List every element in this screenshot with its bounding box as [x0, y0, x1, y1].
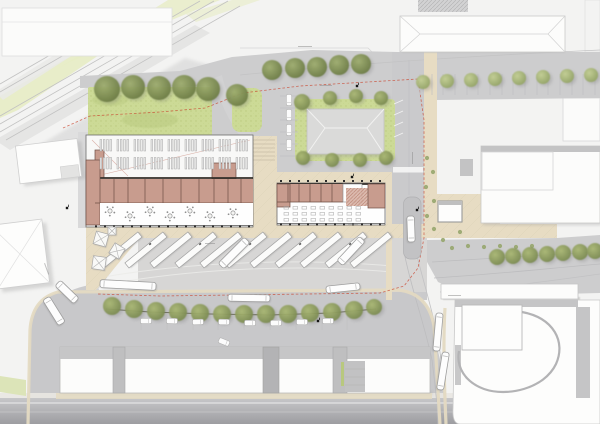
- skylight-bar: [212, 140, 214, 152]
- skylight-bar: [185, 158, 187, 170]
- car-body: [245, 320, 256, 325]
- tree: [325, 153, 339, 167]
- chair: [173, 217, 175, 219]
- column: [248, 226, 250, 228]
- pictogram-symbol: [317, 320, 319, 322]
- room-band: [95, 179, 253, 203]
- column: [379, 224, 381, 226]
- skylight-bar: [188, 158, 190, 170]
- south-building-sidewalk: [56, 393, 432, 399]
- skylight-bar: [209, 158, 211, 170]
- tree: [560, 69, 574, 83]
- car: [141, 318, 152, 323]
- skylight-bar: [103, 140, 105, 152]
- shrub-dot: [450, 246, 454, 250]
- bus: [228, 294, 271, 303]
- skylight-bar: [117, 140, 119, 152]
- tree: [285, 58, 305, 78]
- skylight-bar: [202, 140, 204, 152]
- chair: [149, 215, 151, 217]
- tree: [572, 244, 588, 260]
- skylight-bar: [188, 140, 190, 152]
- site-plan-stage: Bus station site plan — architectural ma…: [0, 0, 600, 424]
- chair: [147, 206, 149, 208]
- skylight-bar: [141, 140, 143, 152]
- micro-label-mark: [412, 152, 413, 164]
- chair: [236, 214, 238, 216]
- skylight-bar: [134, 140, 136, 152]
- tree: [121, 75, 145, 99]
- tree: [94, 76, 120, 102]
- car: [166, 318, 177, 324]
- tree: [464, 73, 478, 87]
- pictogram-symbol: [356, 85, 358, 87]
- tree: [172, 75, 196, 99]
- chair: [230, 208, 232, 210]
- car-body: [286, 95, 291, 106]
- tree: [379, 151, 393, 165]
- column: [289, 180, 291, 182]
- lawn-patch: [122, 112, 178, 128]
- column: [203, 226, 205, 228]
- skylight-bar: [151, 158, 153, 170]
- car: [286, 95, 291, 106]
- skylight-bar: [202, 158, 204, 170]
- skylight-bar: [222, 140, 224, 152]
- chair: [228, 213, 230, 215]
- skylight-bar: [239, 158, 241, 170]
- chair: [132, 211, 134, 213]
- chair: [152, 206, 154, 208]
- column: [194, 226, 196, 228]
- car-body: [323, 318, 334, 323]
- column: [185, 226, 187, 228]
- column: [307, 180, 309, 182]
- skylight-bar: [192, 140, 194, 152]
- skylight-bar: [120, 140, 122, 152]
- tree: [522, 247, 538, 263]
- micro-label-mark: [448, 295, 461, 296]
- room-block-east: [368, 184, 385, 208]
- small-pavilion-roof: [438, 201, 462, 205]
- tree: [125, 300, 143, 318]
- skylight-bar: [161, 140, 163, 152]
- car-body: [192, 319, 203, 325]
- tree: [296, 151, 310, 165]
- pictogram-symbol: [416, 209, 418, 211]
- shrub-dot: [441, 238, 445, 242]
- skylight-bar: [246, 140, 248, 152]
- skylight-bar: [185, 140, 187, 152]
- column: [307, 224, 309, 226]
- skylight-bar: [192, 158, 194, 170]
- skylight-bar: [178, 140, 180, 152]
- chair: [127, 211, 129, 213]
- column: [361, 224, 363, 226]
- column: [167, 226, 169, 228]
- pictogram-symbol: [351, 176, 353, 178]
- skylight-bar: [103, 158, 105, 170]
- chair: [125, 216, 127, 218]
- tree: [366, 299, 382, 315]
- skylight-bar: [137, 140, 139, 152]
- table: [128, 214, 132, 218]
- hall: [100, 203, 253, 225]
- skylight-bar: [107, 140, 109, 152]
- car: [286, 110, 291, 121]
- parasol: [92, 256, 108, 272]
- south-building-yard: [345, 361, 365, 392]
- skylight-bar: [127, 140, 129, 152]
- column: [239, 226, 241, 228]
- chair: [235, 208, 237, 210]
- car: [245, 320, 256, 325]
- skylight-bar: [243, 158, 245, 170]
- skylight-bar: [171, 140, 173, 152]
- skylight-bar: [134, 158, 136, 170]
- car-body: [218, 319, 229, 325]
- skylight-bar: [209, 140, 211, 152]
- table: [148, 209, 152, 213]
- car-body: [270, 320, 281, 326]
- table: [168, 214, 172, 218]
- tree: [323, 91, 337, 105]
- column: [379, 180, 381, 182]
- skylight-bar: [168, 140, 170, 152]
- skylight-bar: [205, 140, 207, 152]
- skylight-bar: [168, 158, 170, 170]
- shrub-dot: [432, 227, 436, 231]
- chair: [185, 211, 187, 213]
- micro-label-mark: [320, 85, 332, 86]
- east-building-annex: [460, 159, 473, 176]
- skylight-bar: [110, 158, 112, 170]
- shrub-dot: [458, 230, 462, 234]
- chair: [109, 215, 111, 217]
- tree: [512, 71, 526, 85]
- chair: [232, 217, 234, 219]
- tree: [147, 302, 165, 320]
- skylight-bar: [154, 140, 156, 152]
- parasol: [108, 227, 117, 236]
- tree: [488, 72, 502, 86]
- column: [361, 180, 363, 182]
- column: [122, 226, 124, 228]
- tree: [147, 76, 171, 100]
- hatched-block-hatch: [418, 0, 468, 12]
- skylight-bar: [141, 158, 143, 170]
- building-outline-right: [563, 98, 600, 141]
- skylight-bar: [178, 158, 180, 170]
- south-building-gable: [333, 347, 347, 393]
- west-building-b: [0, 219, 54, 293]
- shrub-dot: [431, 170, 435, 174]
- tree: [262, 60, 282, 80]
- skylight-bar: [137, 158, 139, 170]
- skylight-bar: [205, 158, 207, 170]
- micro-label-mark: [298, 46, 312, 47]
- column: [334, 180, 336, 182]
- crosswalk: [393, 167, 423, 173]
- car-body: [166, 318, 177, 324]
- column: [176, 226, 178, 228]
- skylight-bar: [124, 140, 126, 152]
- skylight-bar: [195, 158, 197, 170]
- table: [208, 214, 212, 218]
- skylight-bar: [246, 158, 248, 170]
- column: [140, 226, 142, 228]
- skylight-bar: [222, 158, 224, 170]
- skylight-bar: [151, 140, 153, 152]
- tree: [196, 77, 220, 101]
- column: [316, 180, 318, 182]
- skylight-bar: [239, 140, 241, 152]
- tree: [351, 54, 371, 74]
- table: [188, 209, 192, 213]
- chair: [172, 211, 174, 213]
- chair: [153, 212, 155, 214]
- chair: [105, 211, 107, 213]
- southeast-bar-building: [441, 284, 578, 299]
- column: [298, 180, 300, 182]
- chair: [212, 211, 214, 213]
- west-building-a: [15, 138, 86, 187]
- tree: [584, 68, 598, 82]
- skylight-bar: [219, 140, 221, 152]
- shrub-dot: [425, 156, 429, 160]
- tree: [505, 248, 521, 264]
- skylight-bar: [158, 140, 160, 152]
- skylight-bar: [229, 140, 231, 152]
- column: [370, 180, 372, 182]
- car: [286, 125, 291, 136]
- tree: [416, 75, 430, 89]
- skylight-bar: [236, 140, 238, 152]
- table: [231, 211, 235, 215]
- skylight-bar: [144, 140, 146, 152]
- column: [95, 226, 97, 228]
- south-building-gable: [263, 347, 279, 393]
- column: [149, 226, 151, 228]
- west-building-b-body: [0, 219, 50, 289]
- east-building-roof-band: [481, 146, 600, 152]
- column: [370, 224, 372, 226]
- skylight-bar: [212, 158, 214, 170]
- column: [325, 180, 327, 182]
- shrub-dot: [432, 199, 436, 203]
- table: [108, 209, 112, 213]
- canopy-hatch: [346, 188, 368, 206]
- shrub-dot: [425, 214, 429, 218]
- column: [280, 180, 282, 182]
- car: [296, 319, 307, 325]
- micro-label-mark: [205, 243, 215, 244]
- chair: [189, 215, 191, 217]
- tree: [555, 245, 571, 261]
- east-building: [481, 146, 600, 223]
- column: [158, 226, 160, 228]
- car: [323, 318, 334, 323]
- west-building-a-wing: [60, 165, 79, 179]
- column: [280, 224, 282, 226]
- site-plan-drawing: Bus station site plan — architectural ma…: [0, 0, 600, 424]
- column: [343, 224, 345, 226]
- chair: [165, 216, 167, 218]
- chair: [207, 211, 209, 213]
- skylight-bar: [144, 158, 146, 170]
- chair: [205, 216, 207, 218]
- chair: [169, 220, 171, 222]
- tree: [353, 153, 367, 167]
- southeast-east-wing: [576, 307, 590, 398]
- shrub-dot: [424, 185, 428, 189]
- skylight-bar: [171, 158, 173, 170]
- tree: [103, 297, 121, 315]
- center-building: [307, 109, 384, 154]
- car-body: [141, 318, 152, 323]
- chair: [193, 212, 195, 214]
- chair: [213, 217, 215, 219]
- column: [221, 226, 223, 228]
- column: [131, 226, 133, 228]
- tree: [294, 94, 310, 110]
- car-body: [286, 140, 291, 151]
- skylight-bar: [100, 158, 102, 170]
- column: [352, 180, 354, 182]
- skylight-bar: [154, 158, 156, 170]
- car-body: [286, 125, 291, 136]
- skylight-bar: [107, 158, 109, 170]
- column: [212, 226, 214, 228]
- southeast-inner-block: [462, 305, 522, 350]
- skylight-bar: [219, 158, 221, 170]
- tree: [279, 305, 297, 323]
- column: [104, 226, 106, 228]
- skylight-bar: [117, 158, 119, 170]
- skylight-bar: [195, 140, 197, 152]
- micro-label-mark: [348, 224, 358, 225]
- tree: [349, 89, 363, 103]
- bus: [406, 216, 416, 243]
- skylight-bar: [161, 158, 163, 170]
- tree: [307, 57, 327, 77]
- chair: [145, 211, 147, 213]
- chair: [187, 206, 189, 208]
- column: [343, 180, 345, 182]
- column: [334, 224, 336, 226]
- chair: [113, 212, 115, 214]
- car: [286, 140, 291, 151]
- shrub-dot: [466, 244, 470, 248]
- car: [270, 320, 281, 326]
- car-body: [286, 110, 291, 121]
- column: [316, 224, 318, 226]
- tree: [345, 301, 363, 319]
- shrub-dot: [498, 244, 502, 248]
- chair: [129, 220, 131, 222]
- tree: [489, 249, 505, 265]
- column: [289, 224, 291, 226]
- skylight-bar: [127, 158, 129, 170]
- skylight-bar: [243, 140, 245, 152]
- skylight-bar: [226, 158, 228, 170]
- pictogram-symbol: [66, 207, 68, 209]
- tree: [374, 91, 388, 105]
- south-building-green-sliver: [341, 362, 344, 386]
- skylight-bar: [100, 140, 102, 152]
- chair: [209, 220, 211, 222]
- skylight-bar: [226, 140, 228, 152]
- chair: [112, 206, 114, 208]
- chair: [133, 217, 135, 219]
- column: [325, 224, 327, 226]
- column: [298, 224, 300, 226]
- bus-body: [228, 294, 270, 302]
- skylight-bar: [158, 158, 160, 170]
- skylight-bar: [175, 158, 177, 170]
- tree: [440, 74, 454, 88]
- south-building-gable: [113, 347, 125, 393]
- skylight-bar: [236, 158, 238, 170]
- column: [230, 226, 232, 228]
- tree: [226, 84, 248, 106]
- skylight-bar: [120, 158, 122, 170]
- skylight-bar: [110, 140, 112, 152]
- chair: [107, 206, 109, 208]
- chair: [192, 206, 194, 208]
- car: [192, 319, 203, 325]
- car-body: [296, 319, 307, 325]
- building-outline-top-left: [2, 8, 172, 56]
- skylight-bar: [175, 140, 177, 152]
- car: [218, 319, 229, 325]
- chair: [167, 211, 169, 213]
- skylight-bar: [124, 158, 126, 170]
- tree: [539, 246, 555, 262]
- tree: [536, 70, 550, 84]
- tree: [329, 55, 349, 75]
- skylight-bar: [229, 158, 231, 170]
- shrub-dot: [482, 245, 486, 249]
